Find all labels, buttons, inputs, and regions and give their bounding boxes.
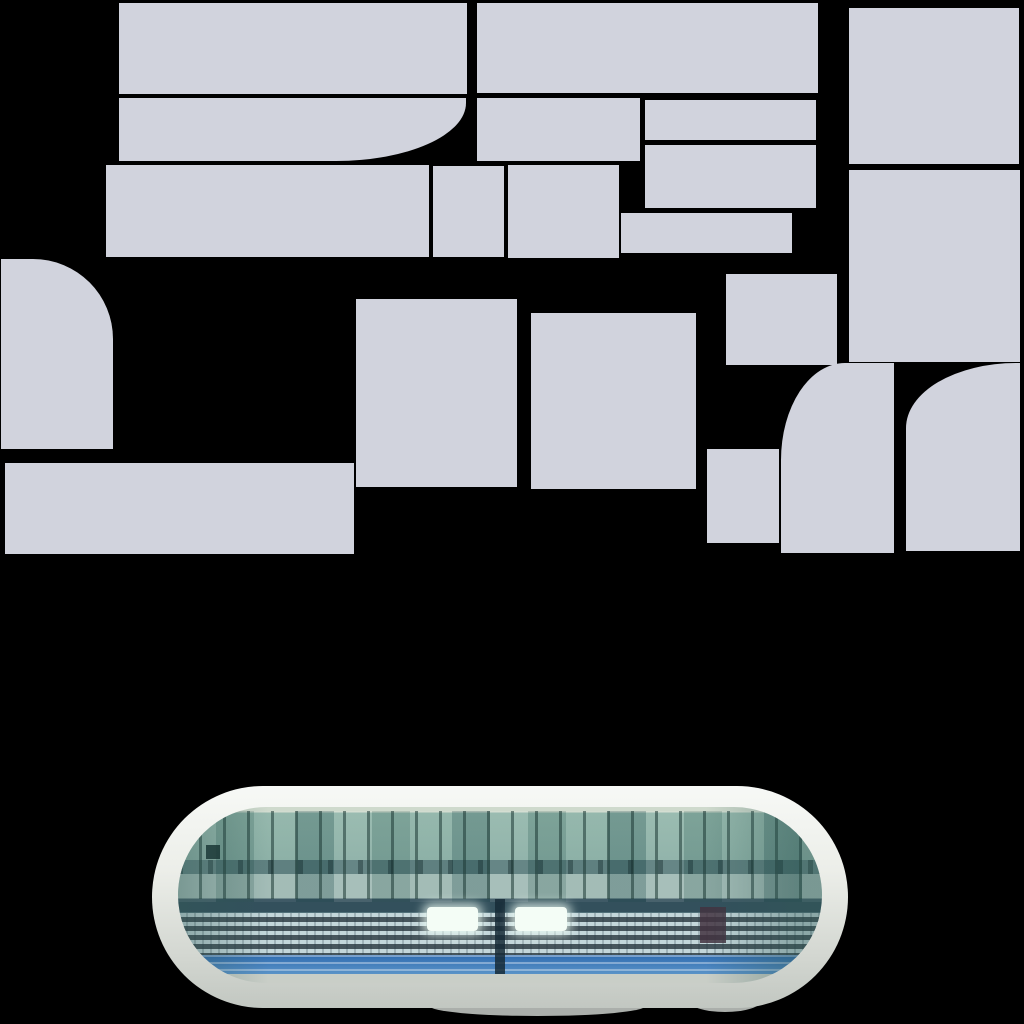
atlas-tile-bottom-left-bar bbox=[5, 463, 354, 554]
atlas-tile-row2-mid bbox=[477, 98, 640, 161]
side-glass-shading bbox=[178, 807, 822, 983]
atlas-tile-round-corner-a bbox=[781, 363, 894, 553]
atlas-tile-row3-small bbox=[433, 166, 504, 257]
atlas-tile-row2-curved bbox=[119, 98, 466, 161]
atlas-tile-row3-mid bbox=[508, 165, 619, 258]
atlas-tile-mid-left-block bbox=[356, 299, 517, 487]
atlas-tile-small-lower-block bbox=[707, 449, 779, 543]
atlas-tile-row3-left bbox=[106, 165, 429, 257]
atlas-tile-mid-right-block bbox=[531, 313, 696, 489]
texture-atlas-canvas bbox=[0, 0, 1024, 1024]
atlas-tile-row1-left bbox=[119, 3, 467, 94]
atlas-tile-right-col-mid bbox=[849, 170, 1020, 362]
floodlight-glare-right bbox=[515, 907, 567, 931]
atlas-tile-small-upper-block bbox=[726, 274, 837, 365]
atlas-tile-row3-lower-strip bbox=[621, 213, 792, 253]
stadium-photo bbox=[178, 807, 822, 983]
atlas-tile-right-col-top bbox=[849, 8, 1019, 164]
floodlight-glare-left bbox=[427, 907, 478, 931]
atlas-tile-row1-mid bbox=[477, 3, 818, 93]
mirror-capsule bbox=[152, 786, 848, 1008]
atlas-tile-left-edge-round bbox=[1, 259, 113, 449]
atlas-tile-round-corner-b bbox=[906, 363, 1020, 551]
atlas-tile-row2-right bbox=[645, 100, 816, 140]
atlas-tile-row3-right bbox=[645, 145, 816, 208]
